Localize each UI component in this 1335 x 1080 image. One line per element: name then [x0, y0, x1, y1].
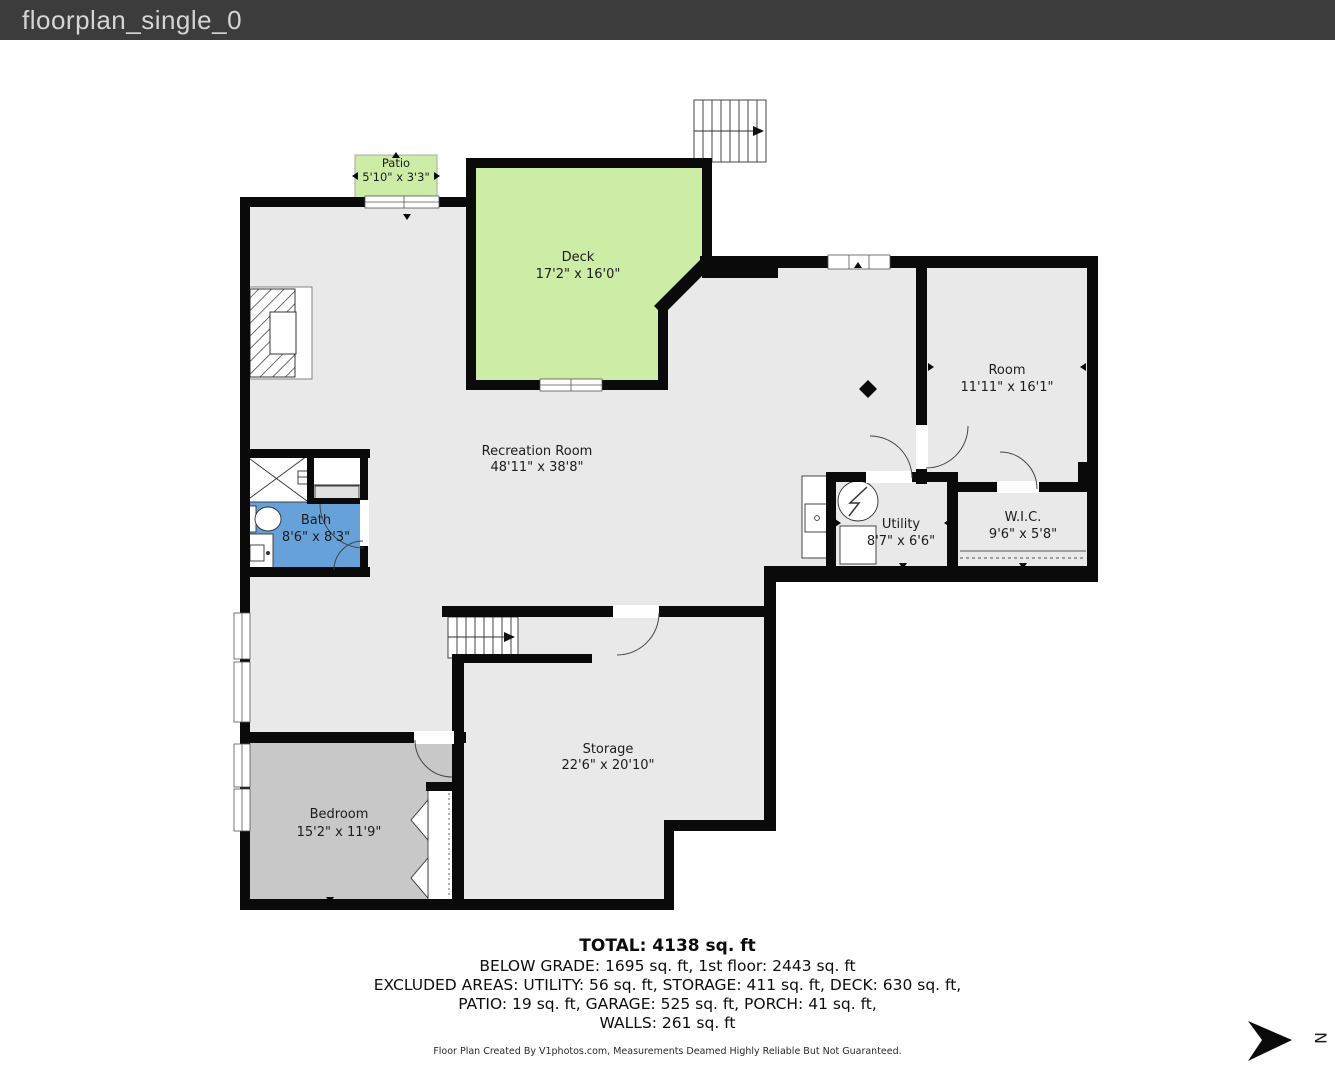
storage-door-gap	[613, 605, 659, 618]
credit-text: Floor Plan Created By V1photos.com, Meas…	[0, 1046, 1335, 1057]
recreation-room-dims: 48'11" x 38'8"	[491, 460, 584, 475]
window-title: floorplan_single_0	[22, 5, 242, 36]
wic-label: W.I.C.	[1005, 510, 1042, 525]
deck-stairs	[694, 100, 766, 162]
patio-label: Patio	[382, 156, 410, 170]
total-area-line: TOTAL: 4138 sq. ft	[0, 936, 1335, 957]
patio-dims: 5'10" x 3'3"	[362, 170, 430, 184]
utility-dims: 8'7" x 6'6"	[867, 534, 935, 549]
utility-door-gap	[866, 471, 912, 483]
bath-door-gap	[360, 500, 369, 546]
excluded-areas-line: EXCLUDED AREAS: UTILITY: 56 sq. ft, STOR…	[0, 976, 1335, 995]
bedroom-door-gap	[414, 731, 454, 744]
toilet-bowl	[255, 507, 281, 531]
room-door-gap	[916, 425, 928, 469]
excluded-areas-line2: PATIO: 19 sq. ft, GARAGE: 525 sq. ft, PO…	[0, 995, 1335, 1014]
window	[234, 613, 250, 659]
walls-area-line: WALLS: 261 sq. ft	[0, 1014, 1335, 1033]
room-label: Room	[988, 363, 1025, 378]
bath-label: Bath	[301, 513, 331, 528]
patio-slider	[365, 196, 439, 208]
below-grade-line: BELOW GRADE: 1695 sq. ft, 1st floor: 244…	[0, 957, 1335, 976]
area-summary: TOTAL: 4138 sq. ft BELOW GRADE: 1695 sq.…	[0, 936, 1335, 1033]
bedroom-label: Bedroom	[310, 807, 369, 822]
utility-label: Utility	[882, 517, 921, 532]
storage-label: Storage	[583, 742, 634, 757]
wic-door-gap	[997, 481, 1039, 493]
deck-label: Deck	[562, 250, 595, 265]
window	[234, 744, 250, 787]
window-titlebar: floorplan_single_0	[0, 0, 1335, 40]
bedroom-closet	[428, 790, 454, 900]
deck-dims: 17'2" x 16'0"	[536, 267, 621, 282]
wic-dims: 9'6" x 5'8"	[989, 527, 1057, 542]
north-arrow-icon	[1248, 1021, 1292, 1061]
basement-stairs	[448, 617, 518, 658]
deck-slider	[540, 379, 602, 391]
floorplan-canvas: Patio 5'10" x 3'3" Deck 17'2" x 16'0" Re…	[0, 0, 1335, 1010]
window	[234, 789, 250, 831]
room-dims: 11'11" x 16'1"	[961, 380, 1054, 395]
bath-dims: 8'6" x 8'3"	[282, 530, 350, 545]
window	[234, 662, 250, 722]
storage-dims: 22'6" x 20'10"	[562, 758, 655, 773]
water-heater	[838, 481, 878, 521]
recreation-room-label: Recreation Room	[482, 444, 593, 459]
north-letter: N	[1311, 1032, 1330, 1044]
bedroom-dims: 15'2" x 11'9"	[297, 825, 382, 840]
north-compass: N	[1240, 1012, 1330, 1072]
fireplace-opening	[270, 312, 296, 354]
